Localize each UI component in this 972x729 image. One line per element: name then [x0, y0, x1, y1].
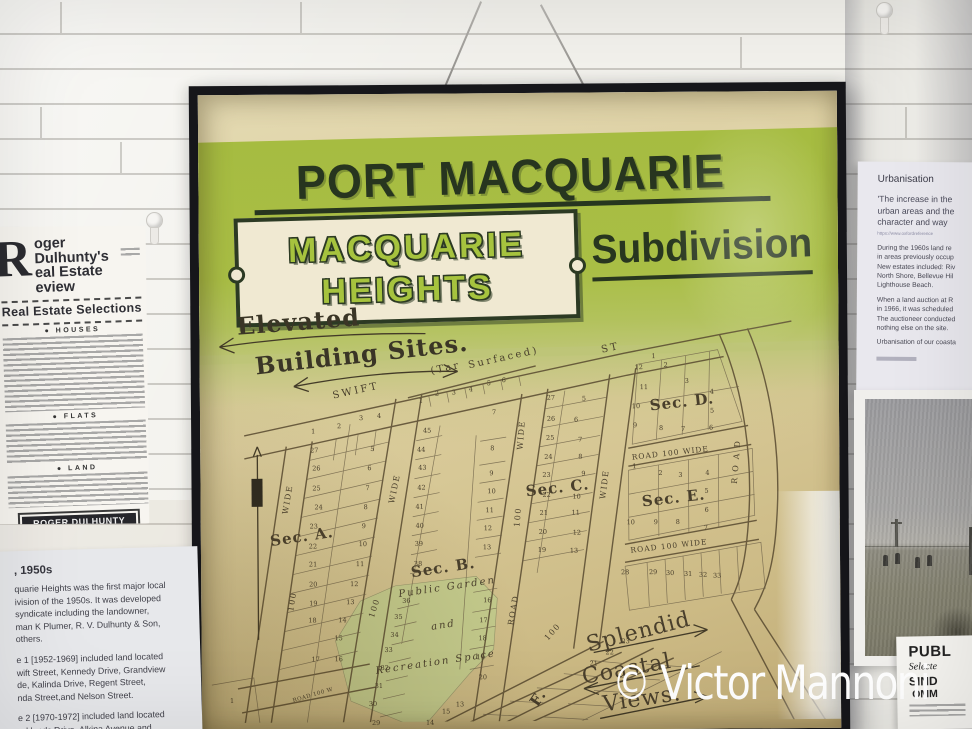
wall-hook-top-right — [876, 2, 893, 35]
map-label: 100 — [512, 507, 523, 527]
quote-line: urban areas and the — [877, 205, 972, 217]
urbanisation-url: https://www.oxfordreference — [877, 230, 972, 236]
masthead-fine-print — [120, 248, 140, 258]
card-paragraph-2: e 1 [1952-1969] included land locatedwif… — [16, 649, 195, 704]
newspaper-clipping: R oger Dulhunty's eal Estate eview Real … — [0, 221, 159, 529]
card-heading: , 1950s — [14, 560, 192, 577]
map-label: Recreation Space — [375, 648, 497, 677]
subdivision-poster: PORT MACQUARIE MACQUARIE HEIGHTS Subdivi… — [198, 91, 841, 729]
info-card-1950s: , 1950s quarie Heights was the first maj… — [0, 546, 203, 729]
quote-line: 'The increase in the — [878, 194, 972, 206]
map-label: 100 — [367, 597, 382, 619]
map-label: Sec. C. — [525, 475, 590, 500]
map-label: Sec. E. — [641, 485, 706, 510]
map-label: 100 — [286, 591, 298, 612]
urbanisation-quote: 'The increase in theurban areas and thec… — [877, 194, 972, 230]
masthead-dropcap: R — [0, 237, 33, 296]
map-label: and — [430, 618, 456, 633]
map-label: Sec. D. — [649, 389, 715, 414]
photographer-watermark: © Victor Mannoni — [612, 656, 929, 711]
brick-joint — [300, 2, 302, 33]
map-label: WIDE — [281, 484, 295, 515]
map-labels-layer: SWIFT(TarSurfaced)STWIDE100WIDE100WIDE10… — [198, 91, 841, 729]
urbanisation-caption — [876, 357, 916, 361]
map-label: ROAD — [730, 435, 743, 484]
selections-title: Real Estate Selections — [2, 301, 142, 320]
map-label: ST — [600, 341, 620, 356]
map-label: SWIFT — [332, 381, 380, 402]
museum-wall-photo: PORT MACQUARIE MACQUARIE HEIGHTS Subdivi… — [0, 0, 972, 729]
map-label: ROAD — [506, 594, 520, 626]
card-paragraph-3: e 2 [1970-1972] included land locatedark… — [18, 708, 197, 729]
quote-line: character and way — [877, 217, 972, 229]
field-auction-photo — [865, 399, 972, 656]
map-label: ROAD 100 W — [292, 687, 334, 705]
map-label: Sec. A. — [269, 523, 335, 550]
map-label: 100 — [543, 621, 563, 642]
photo-grain — [865, 399, 972, 656]
map-label: WIDE — [515, 420, 526, 450]
card-paragraph-1: quarie Heights was the first major local… — [14, 578, 194, 646]
urbanisation-card: Urbanisation 'The increase in theurban a… — [856, 162, 972, 395]
urbanisation-heading: Urbanisation — [878, 174, 972, 186]
urbanisation-paragraph-2: When a land auction at Rin 1966, it was … — [877, 295, 972, 333]
body-text-land — [7, 471, 148, 508]
text-line: in 1966, it was scheduled — [877, 305, 972, 315]
map-label: ROAD 100 WIDE — [630, 537, 708, 555]
map-label: Surfaced) — [467, 345, 540, 371]
body-text-houses — [3, 334, 145, 413]
map-label: (Tar — [430, 360, 462, 377]
masthead-line-3: eview — [35, 278, 117, 295]
map-label: Sec. B. — [410, 554, 477, 581]
text-line: nothing else on the site. — [877, 324, 972, 334]
urbanisation-paragraph-1: During the 1960s land rein areas previou… — [877, 243, 972, 291]
text-line: in areas previously occup — [877, 253, 972, 263]
wall-hook-left — [146, 212, 163, 245]
masthead-line-1: oger Dulhunty's — [34, 234, 117, 266]
map-label: WIDE — [598, 469, 610, 499]
map-label: F. — [526, 686, 550, 710]
urbanisation-paragraph-3: Urbanisation of our coasta — [877, 338, 972, 348]
newspaper-masthead: R oger Dulhunty's eal Estate eview — [0, 234, 141, 297]
picture-frame: PORT MACQUARIE MACQUARIE HEIGHTS Subdivi… — [189, 82, 851, 729]
map-label: WIDE — [387, 473, 402, 504]
historic-photo-panel — [854, 390, 972, 666]
map-label: ROAD 100 WIDE — [631, 444, 709, 462]
brick-joint — [120, 142, 122, 173]
text-line: Lighthouse Beach. — [877, 281, 972, 291]
body-text-flats — [6, 419, 147, 464]
brick-joint — [40, 107, 42, 138]
brick-joint — [740, 37, 742, 68]
brick-joint — [60, 2, 62, 33]
text-line: Urbanisation of our coasta — [877, 338, 972, 348]
map-label: Splendid — [584, 607, 693, 658]
